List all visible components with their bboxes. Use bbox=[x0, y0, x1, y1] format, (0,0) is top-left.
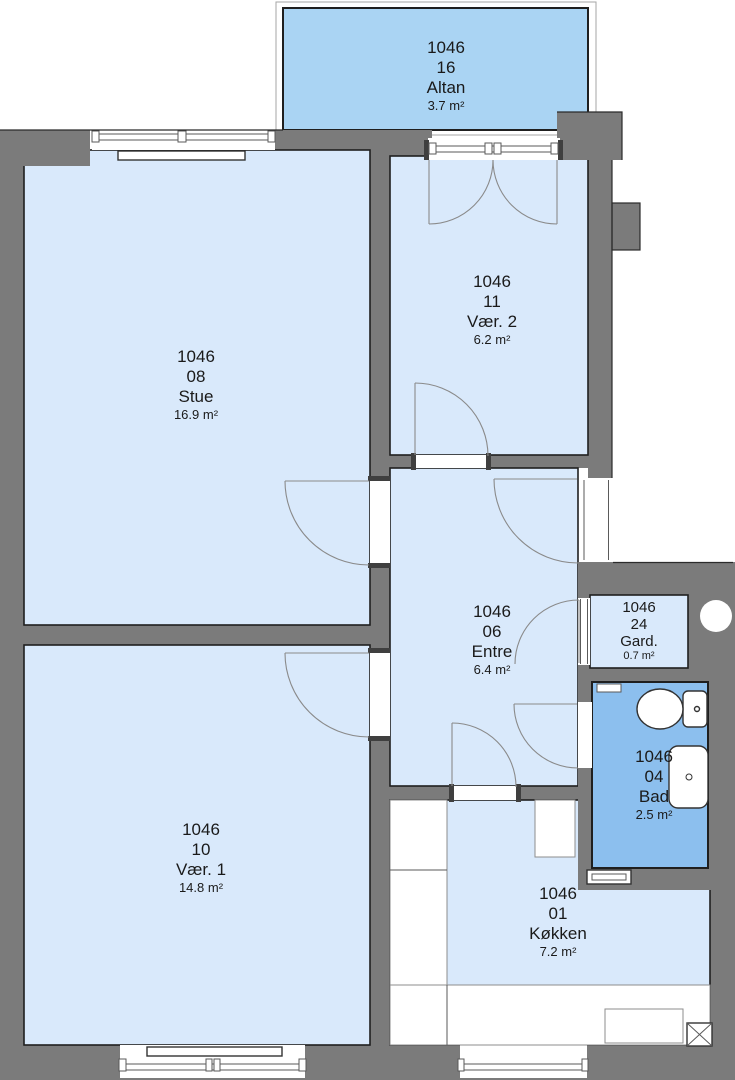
room-area: 0.7 m² bbox=[623, 650, 654, 663]
room-apartment: 1046 bbox=[427, 38, 465, 58]
radiator-vaer1-icon bbox=[147, 1047, 282, 1056]
room-label-bad: 1046 04 Bad 2.5 m² bbox=[589, 747, 719, 823]
floor-plan-drawing bbox=[0, 0, 735, 1080]
kitchen-tall-cabinet bbox=[535, 800, 575, 857]
room-area: 2.5 m² bbox=[636, 807, 673, 823]
room-name: Bad bbox=[639, 787, 669, 807]
room-label-stue: 1046 08 Stue 16.9 m² bbox=[131, 347, 261, 423]
room-area: 6.4 m² bbox=[474, 662, 511, 678]
bad-vent bbox=[597, 684, 621, 692]
room-number: 01 bbox=[549, 904, 568, 924]
room-area: 6.2 m² bbox=[474, 332, 511, 348]
room-area: 16.9 m² bbox=[174, 407, 218, 423]
room-name: Altan bbox=[427, 78, 466, 98]
floor-plan: 1046 16 Altan 3.7 m² 1046 08 Stue 16.9 m… bbox=[0, 0, 735, 1080]
shaft-cross-icon bbox=[687, 1023, 712, 1046]
room-apartment: 1046 bbox=[473, 602, 511, 622]
room-area: 3.7 m² bbox=[428, 98, 465, 114]
room-label-altan: 1046 16 Altan 3.7 m² bbox=[381, 38, 511, 114]
room-apartment: 1046 bbox=[473, 272, 511, 292]
window-koekken bbox=[460, 1045, 587, 1078]
kitchen-counter-left bbox=[390, 800, 447, 985]
room-apartment: 1046 bbox=[539, 884, 577, 904]
room-number: 24 bbox=[631, 616, 648, 633]
door-opening-vaer2 bbox=[415, 455, 488, 468]
radiator-stue-icon bbox=[118, 151, 245, 160]
room-name: Stue bbox=[179, 387, 214, 407]
room-name: Vær. 2 bbox=[467, 312, 517, 332]
room-label-koekken: 1046 01 Køkken 7.2 m² bbox=[493, 884, 623, 960]
kitchen-appliance bbox=[605, 1009, 683, 1043]
room-number: 11 bbox=[483, 292, 501, 312]
room-label-entre: 1046 06 Entre 6.4 m² bbox=[427, 602, 557, 678]
room-name: Køkken bbox=[529, 924, 587, 944]
room-label-gard: 1046 24 Gard. 0.7 m² bbox=[574, 599, 704, 663]
room-number: 04 bbox=[645, 767, 664, 787]
room-name: Gard. bbox=[620, 633, 658, 650]
room-apartment: 1046 bbox=[622, 599, 655, 616]
room-name: Vær. 1 bbox=[176, 860, 226, 880]
door-opening-koekken bbox=[452, 786, 518, 800]
toilet-icon bbox=[637, 689, 707, 729]
room-number: 08 bbox=[187, 367, 206, 387]
room-apartment: 1046 bbox=[182, 820, 220, 840]
room-number: 16 bbox=[437, 58, 456, 78]
room-area: 14.8 m² bbox=[179, 880, 223, 896]
room-apartment: 1046 bbox=[635, 747, 673, 767]
room-label-vaer1: 1046 10 Vær. 1 14.8 m² bbox=[136, 820, 266, 896]
room-number: 10 bbox=[192, 840, 211, 860]
radiator-bad-icon bbox=[587, 870, 631, 884]
door-opening-stue bbox=[370, 480, 390, 565]
door-opening-vaer1 bbox=[370, 652, 390, 738]
room-name: Entre bbox=[472, 642, 513, 662]
room-area: 7.2 m² bbox=[540, 944, 577, 960]
room-number: 06 bbox=[483, 622, 502, 642]
column-cutout bbox=[700, 600, 732, 632]
room-apartment: 1046 bbox=[177, 347, 215, 367]
room-label-vaer2: 1046 11 Vær. 2 6.2 m² bbox=[427, 272, 557, 348]
